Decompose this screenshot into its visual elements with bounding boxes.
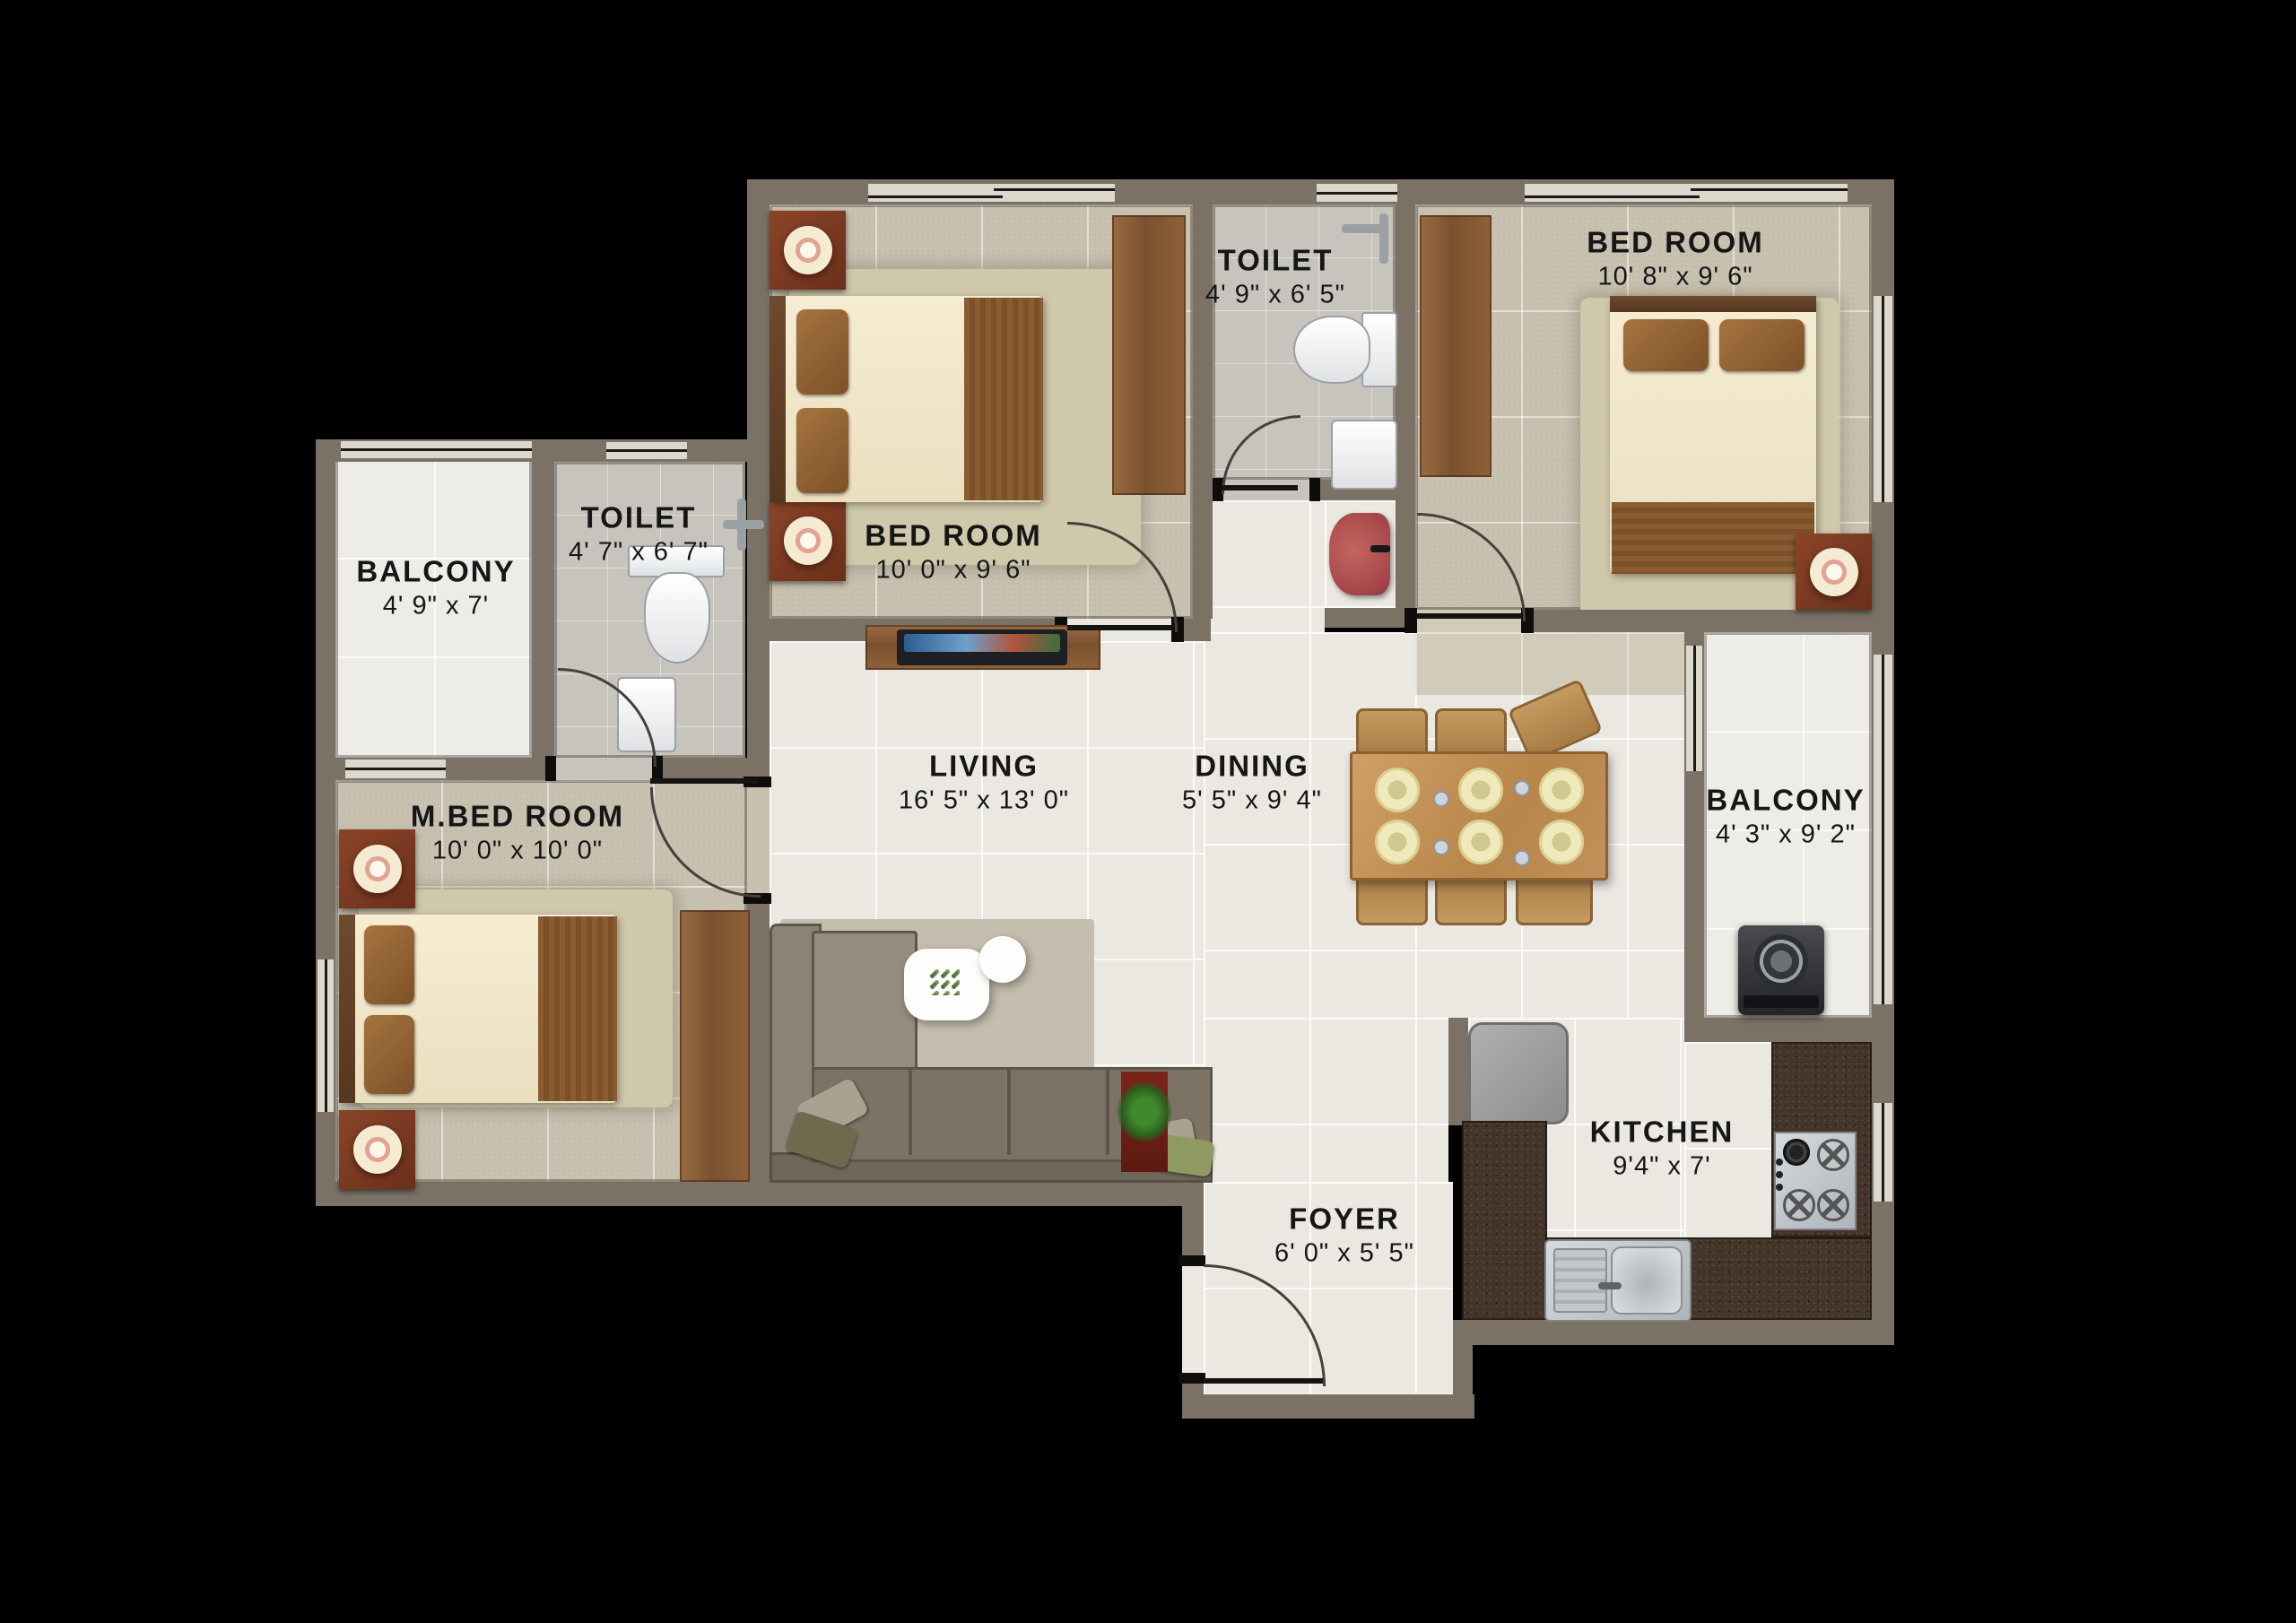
bed-headboard: [1610, 296, 1816, 312]
floor-plan-canvas: BED ROOM 10' 0" x 9' 6" TOILET 4' 9" x 6…: [0, 0, 2296, 1623]
label-bedroom-top-left: BED ROOM 10' 0" x 9' 6": [865, 516, 1042, 586]
tv-screen: [904, 634, 1060, 652]
door-jamb: [1178, 1255, 1205, 1266]
door-leaf: [1204, 1378, 1323, 1384]
label-bedroom-top-right: BED ROOM 10' 8" x 9' 6": [1587, 223, 1764, 293]
burner-icon: [1783, 1139, 1810, 1166]
label-kitchen: KITCHEN 9'4" x 7': [1590, 1113, 1735, 1183]
label-master-bedroom: M.BED ROOM 10' 0" x 10' 0": [411, 797, 624, 867]
wardrobe-master-bedroom: [680, 910, 750, 1182]
room-name: BALCONY: [356, 552, 515, 589]
burner-icon: [1783, 1189, 1815, 1221]
room-dims: 5' 5" x 9' 4": [1182, 785, 1322, 817]
tap-icon: [1370, 545, 1390, 552]
wardrobe-bedroom-top-left: [1112, 215, 1186, 495]
wardrobe-bedroom-top-right: [1420, 215, 1492, 477]
label-living: LIVING 16' 5" x 13' 0": [899, 747, 1069, 817]
plate-icon: [1375, 768, 1420, 812]
window-toilet-top: [1317, 184, 1397, 202]
glass-icon: [1514, 780, 1530, 796]
washing-machine-drum: [1754, 934, 1808, 988]
label-toilet-left: TOILET 4' 7" x 6' 7": [569, 499, 709, 568]
label-dining: DINING 5' 5" x 9' 4": [1182, 747, 1322, 817]
room-dims: 4' 9" x 7': [383, 590, 489, 622]
sliding-door-balcony-right: [1686, 646, 1702, 771]
room-dims: 10' 0" x 9' 6": [875, 554, 1031, 586]
room-name: M.BED ROOM: [411, 797, 624, 834]
window-bedroom2: [1525, 184, 1848, 202]
wall-foyer-left-upper: [1182, 1182, 1204, 1264]
wall-bedroom2-bottom: [1523, 610, 1894, 632]
wall-alcove-bottom: [1325, 608, 1415, 628]
label-foyer: FOYER 6' 0" x 5' 5": [1274, 1200, 1414, 1270]
room-name: DINING: [1195, 747, 1309, 784]
wall-foyer-bottom: [1182, 1394, 1474, 1419]
table-decor: [929, 968, 960, 995]
label-toilet-top: TOILET 4' 9" x 6' 5": [1205, 241, 1345, 311]
wall-kitchen-left: [1448, 1018, 1468, 1125]
room-name: LIVING: [929, 747, 1039, 784]
burner-icon: [1817, 1189, 1849, 1221]
sofa-seat-divider: [1007, 1069, 1011, 1155]
toilet-bowl-icon: [644, 572, 710, 664]
washing-machine-panel: [1744, 995, 1819, 1008]
plate-icon: [1458, 768, 1503, 812]
door-jamb: [545, 756, 556, 781]
sink-bowl: [1611, 1246, 1683, 1315]
window-balcony-right: [1874, 655, 1892, 1004]
door-leaf: [1222, 485, 1298, 490]
bed-blanket: [964, 298, 1043, 500]
lamp-icon: [353, 845, 402, 893]
lamp-icon: [1810, 548, 1858, 596]
tap-icon: [737, 499, 746, 551]
washbasin-red-icon: [1329, 513, 1390, 595]
kitchen-counter: [1462, 1121, 1547, 1320]
bed-headboard: [770, 296, 786, 502]
window-toilet-left: [606, 442, 687, 459]
room-dims: 10' 0" x 10' 0": [432, 835, 603, 867]
window-bedroom1: [868, 184, 1115, 202]
room-name: KITCHEN: [1590, 1113, 1735, 1150]
plate-icon: [1539, 820, 1584, 864]
window-balcony-left-bottom: [345, 759, 446, 778]
room-dims: 9'4" x 7': [1613, 1150, 1710, 1183]
room-name: FOYER: [1289, 1200, 1400, 1237]
window-bedroom2-right: [1874, 296, 1892, 502]
pillow: [1623, 319, 1709, 371]
room-name: BED ROOM: [1587, 223, 1764, 260]
sofa-seat-divider: [1106, 1069, 1109, 1155]
glass-icon: [1433, 791, 1449, 807]
toilet-bowl-icon: [1293, 316, 1370, 384]
pillow: [364, 925, 414, 1004]
pillow: [1719, 319, 1805, 371]
wall-balcony-right-bottom: [1684, 1018, 1894, 1042]
label-balcony-left: BALCONY 4' 9" x 7': [356, 552, 515, 622]
room-name: TOILET: [1218, 241, 1334, 278]
wall-foyer-left-lower: [1182, 1384, 1204, 1419]
lamp-icon: [784, 226, 832, 274]
room-dims: 16' 5" x 13' 0": [899, 785, 1069, 817]
room-dims: 4' 9" x 6' 5": [1205, 279, 1345, 311]
door-jamb: [1405, 608, 1417, 633]
lamp-icon: [784, 516, 832, 565]
pillow: [796, 408, 848, 493]
plate-icon: [1458, 820, 1503, 864]
refrigerator-icon: [1468, 1022, 1569, 1124]
door-leaf: [1417, 613, 1523, 619]
label-balcony-right: BALCONY 4' 3" x 9' 2": [1706, 781, 1865, 851]
floor-dining-lower: [1204, 1018, 1448, 1182]
room-dims: 4' 3" x 9' 2": [1716, 819, 1856, 851]
sofa-chaise: [812, 931, 918, 1075]
tap-icon: [1379, 213, 1388, 264]
room-name: TOILET: [581, 499, 697, 535]
burner-icon: [1817, 1139, 1849, 1171]
bed-headboard: [339, 915, 355, 1103]
bed-blanket: [538, 916, 617, 1101]
room-dims: 10' 8" x 9' 6": [1597, 261, 1752, 293]
glass-icon: [1433, 839, 1449, 855]
floor-hall: [1204, 500, 1325, 641]
window-kitchen: [1874, 1103, 1892, 1202]
door-leaf: [1067, 625, 1175, 630]
tap-icon: [1598, 1282, 1622, 1289]
room-dims: 6' 0" x 5' 5": [1274, 1237, 1414, 1270]
pillow: [364, 1015, 414, 1094]
pillow: [796, 309, 848, 395]
room-name: BED ROOM: [865, 516, 1042, 553]
door-jamb: [1178, 1373, 1205, 1384]
window-master-bedroom: [317, 959, 334, 1112]
wall-kitchen-bottom: [1453, 1320, 1894, 1345]
wall-toilet-top-right: [1396, 204, 1415, 619]
floor-passage: [1415, 632, 1684, 695]
lamp-icon: [353, 1125, 402, 1174]
plate-icon: [1539, 768, 1584, 812]
sofa-seat-divider: [909, 1069, 912, 1155]
room-dims: 4' 7" x 6' 7": [569, 536, 709, 568]
sink-drainboard: [1553, 1248, 1607, 1313]
plant-icon: [1116, 1081, 1173, 1143]
plate-icon: [1375, 820, 1420, 864]
door-leaf: [650, 778, 758, 784]
wall-bottom-left: [316, 1182, 1204, 1206]
wall-balcony-toilet-divider: [532, 453, 554, 762]
room-name: BALCONY: [1706, 781, 1865, 818]
window-balcony-left-top: [341, 441, 532, 458]
door-opening-entrance: [1182, 1264, 1204, 1384]
washbasin-icon: [1331, 420, 1397, 490]
glass-icon: [1514, 850, 1530, 866]
wall-bedroom1-left: [747, 179, 770, 780]
stove-knobs: [1776, 1159, 1783, 1166]
side-table: [979, 936, 1026, 983]
door-jamb: [1309, 478, 1320, 501]
bed-blanket: [1612, 502, 1814, 574]
